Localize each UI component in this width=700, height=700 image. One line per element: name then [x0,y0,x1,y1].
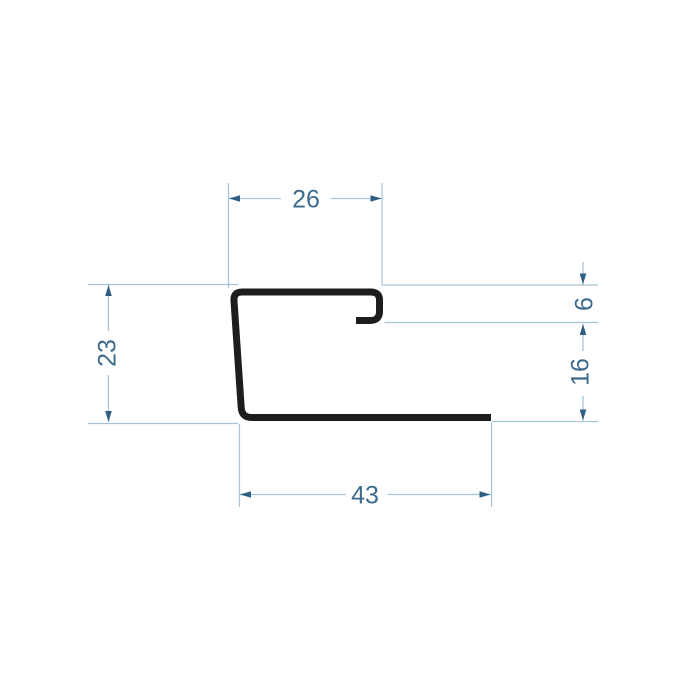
arrowhead-right [371,195,382,202]
arrowhead-up [105,285,112,296]
dimension-left-height: 23 [94,285,122,422]
dimension-bottom-width: 43 [240,482,491,510]
drawing-canvas: 26 23 6 [0,0,700,700]
arrowhead-left [240,491,251,498]
dimension-label-right-height: 16 [567,358,595,386]
arrowhead-down [105,411,112,422]
dimension-label-bottom-width: 43 [351,482,379,510]
arrowhead-down [580,410,587,421]
arrowhead-left [229,195,240,202]
dimension-right-height: 16 [567,324,595,421]
dimension-top-width: 26 [229,186,382,214]
profile-outline [234,292,491,418]
dimension-label-top-width: 26 [292,186,320,214]
arrowhead-right [480,491,491,498]
arrowhead-down [580,274,587,285]
dimension-lip-depth: 6 [571,262,599,311]
profile-drawing: 26 23 6 [0,0,700,700]
dimension-label-left-height: 23 [94,339,122,367]
dimension-label-lip-depth: 6 [571,297,599,311]
extension-lines [88,183,598,507]
arrowhead-up [580,324,587,335]
